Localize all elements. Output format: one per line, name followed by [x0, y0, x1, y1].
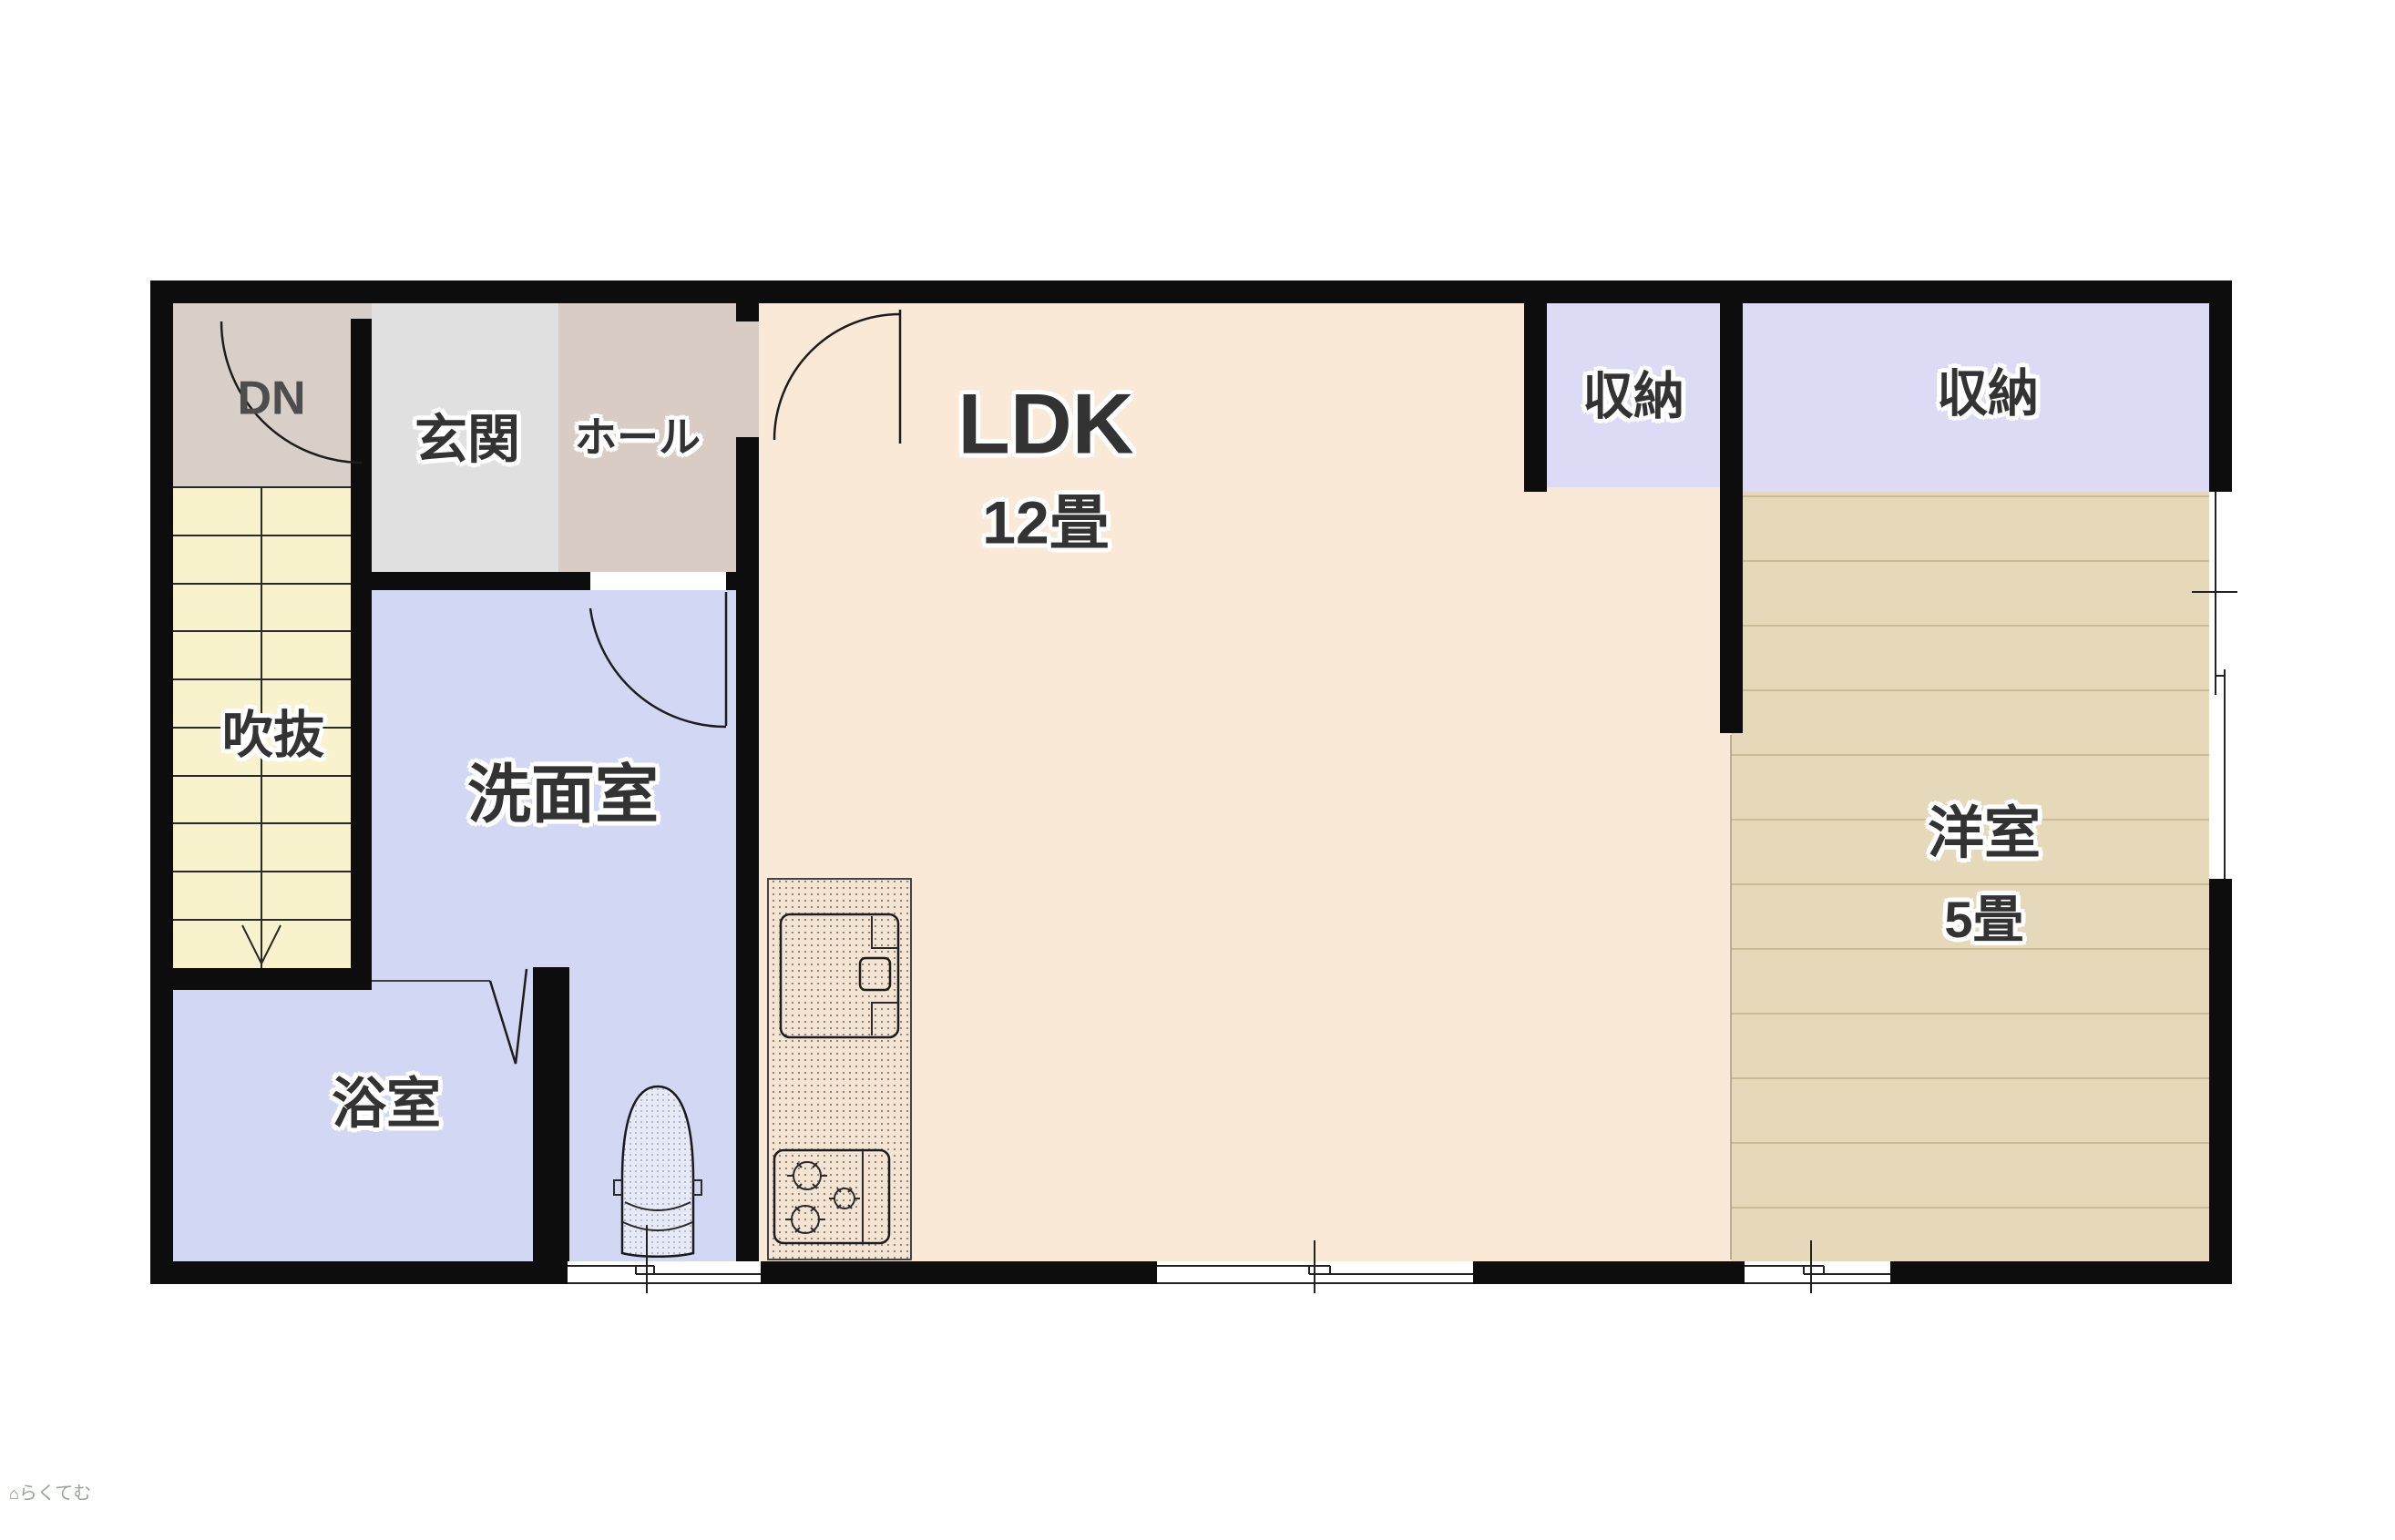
wall-bottom-4	[1890, 1261, 2232, 1284]
floor-plan: DN 玄関 ホール 吹抜 洗面室 浴室 LDK 12畳 収納 収納 洋室 5畳 …	[0, 0, 2395, 1540]
wall-right-lower	[2209, 879, 2232, 1284]
wall-bottom-3	[1473, 1261, 1745, 1284]
label-entry: 玄関	[415, 413, 520, 469]
label-closet-west: 収納	[1937, 368, 2039, 422]
label-western-size: 5畳	[1944, 891, 2023, 948]
label-bathroom: 浴室	[332, 1076, 441, 1133]
watermark-text: らくてむ	[19, 1484, 91, 1504]
wall-hall-ldk-main	[736, 437, 759, 1261]
wall-under-stairs	[150, 968, 372, 990]
wall-closet-left	[1524, 280, 1547, 492]
label-dn: DN	[237, 374, 305, 424]
label-ldk-name: LDK	[957, 375, 1133, 471]
wall-left	[150, 280, 173, 1284]
wall-wash-top	[372, 572, 590, 590]
wall-ldk-western	[1720, 280, 1743, 733]
label-western-name: 洋室	[1928, 802, 2041, 865]
label-closet-ldk: 収納	[1582, 371, 1684, 424]
wall-wash-top-stub	[726, 572, 759, 590]
label-ldk: LDK 12畳	[957, 379, 1133, 558]
label-hall: ホール	[575, 415, 701, 459]
wall-right-upper	[2209, 280, 2232, 492]
label-void: 吹抜	[222, 709, 324, 763]
label-ldk-size: 12畳	[982, 488, 1109, 556]
wall-bottom-1	[150, 1261, 568, 1284]
wall-top	[150, 280, 2232, 303]
wall-bottom-2	[761, 1261, 1157, 1284]
label-washroom: 洗面室	[467, 761, 659, 829]
wall-stairs-column	[351, 319, 372, 990]
wall-hall-ldk-stub	[736, 280, 759, 321]
watermark: ⌂らくてむ	[9, 1484, 91, 1504]
house-icon: ⌂	[9, 1484, 19, 1503]
wall-bath-toilet	[533, 967, 569, 1261]
label-western: 洋室 5畳	[1928, 791, 2041, 961]
